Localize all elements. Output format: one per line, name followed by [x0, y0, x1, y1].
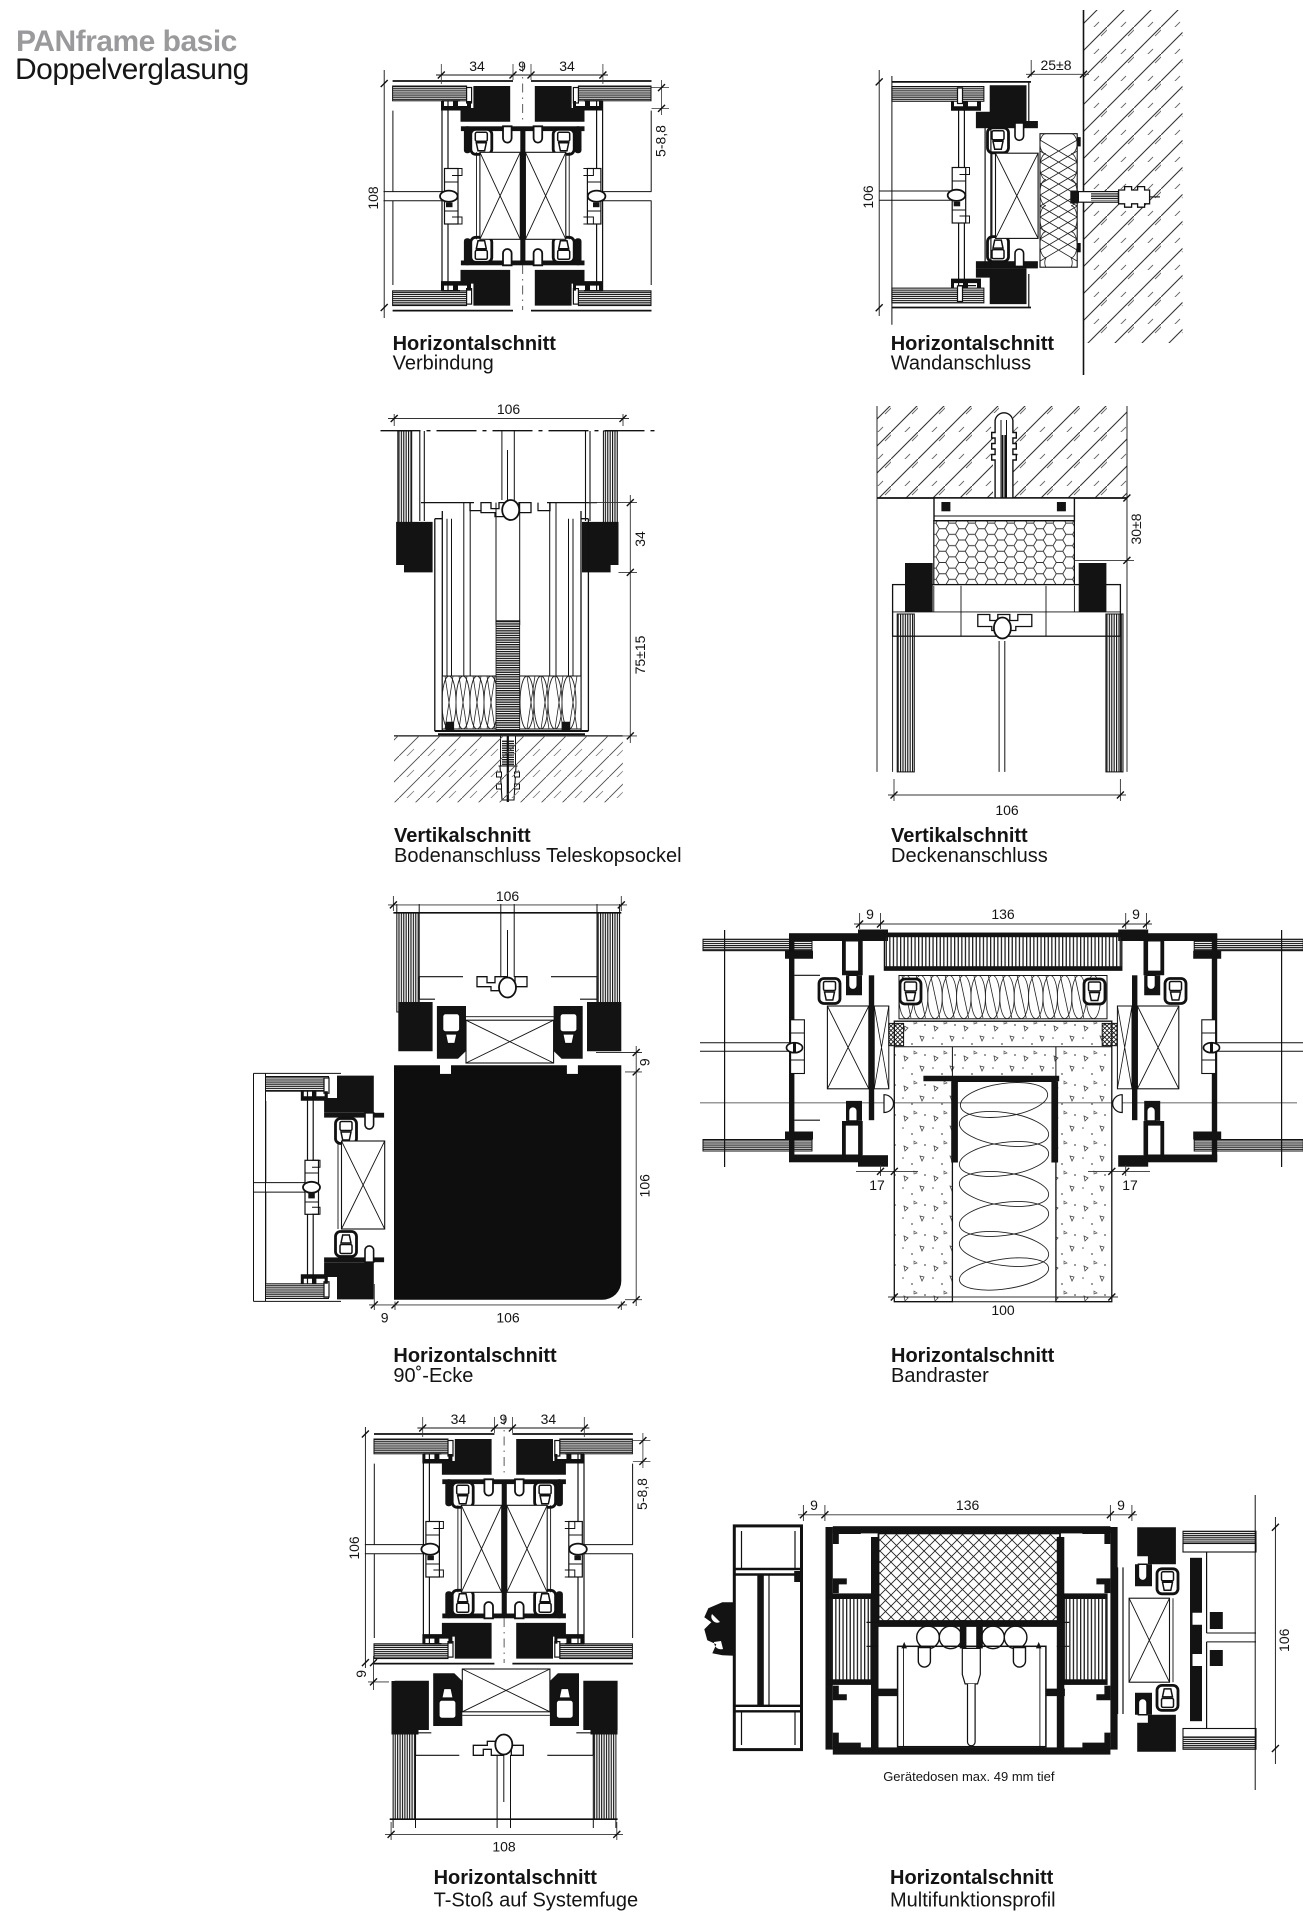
svg-text:Verbindung: Verbindung	[393, 353, 494, 375]
svg-text:Doppelverglasung: Doppelverglasung	[15, 53, 249, 86]
svg-text:T-Stoß auf Systemfuge: T-Stoß auf Systemfuge	[434, 1890, 639, 1912]
svg-text:106: 106	[1276, 1628, 1292, 1652]
svg-text:5-8,8: 5-8,8	[653, 125, 669, 157]
svg-text:Deckenanschluss: Deckenanschluss	[891, 845, 1048, 867]
svg-text:9: 9	[866, 906, 874, 922]
svg-text:106: 106	[995, 802, 1019, 818]
svg-text:17: 17	[869, 1177, 885, 1193]
svg-text:106: 106	[346, 1536, 362, 1560]
svg-text:Multifunktionsprofil: Multifunktionsprofil	[890, 1890, 1056, 1912]
svg-text:30±8: 30±8	[1128, 513, 1144, 544]
svg-text:136: 136	[956, 1497, 980, 1513]
svg-text:9: 9	[353, 1670, 369, 1678]
svg-text:9: 9	[381, 1310, 389, 1326]
svg-text:9: 9	[518, 58, 526, 74]
svg-text:Horizontalschnitt: Horizontalschnitt	[393, 1345, 557, 1367]
svg-text:106: 106	[637, 1174, 653, 1198]
svg-text:Vertikalschnitt: Vertikalschnitt	[394, 825, 531, 847]
svg-text:Wandanschluss: Wandanschluss	[891, 353, 1031, 375]
svg-text:Horizontalschnitt: Horizontalschnitt	[891, 1345, 1055, 1367]
svg-text:17: 17	[1122, 1177, 1138, 1193]
svg-text:75±15: 75±15	[632, 635, 648, 674]
svg-text:100: 100	[991, 1302, 1015, 1318]
svg-text:9: 9	[637, 1058, 653, 1066]
svg-text:34: 34	[559, 58, 575, 74]
svg-text:9: 9	[1132, 906, 1140, 922]
svg-text:Horizontalschnitt: Horizontalschnitt	[890, 1867, 1054, 1889]
svg-text:108: 108	[365, 186, 381, 210]
svg-text:106: 106	[496, 1310, 520, 1326]
svg-text:106: 106	[496, 888, 520, 904]
svg-text:108: 108	[492, 1839, 516, 1855]
svg-text:90˚-Ecke: 90˚-Ecke	[393, 1365, 473, 1387]
svg-text:106: 106	[860, 185, 876, 209]
svg-text:Horizontalschnitt: Horizontalschnitt	[434, 1867, 598, 1889]
svg-text:25±8: 25±8	[1040, 57, 1071, 73]
svg-text:34: 34	[632, 531, 648, 547]
svg-text:Gerätedosen max. 49 mm tief: Gerätedosen max. 49 mm tief	[883, 1769, 1055, 1784]
svg-text:9: 9	[1117, 1497, 1125, 1513]
svg-text:Bandraster: Bandraster	[891, 1365, 989, 1387]
svg-text:136: 136	[991, 906, 1015, 922]
svg-text:Bodenanschluss Teleskopsockel: Bodenanschluss Teleskopsockel	[394, 845, 682, 867]
svg-text:106: 106	[497, 401, 521, 417]
svg-text:Vertikalschnitt: Vertikalschnitt	[891, 825, 1028, 847]
svg-text:9: 9	[810, 1497, 818, 1513]
svg-text:34: 34	[469, 58, 485, 74]
